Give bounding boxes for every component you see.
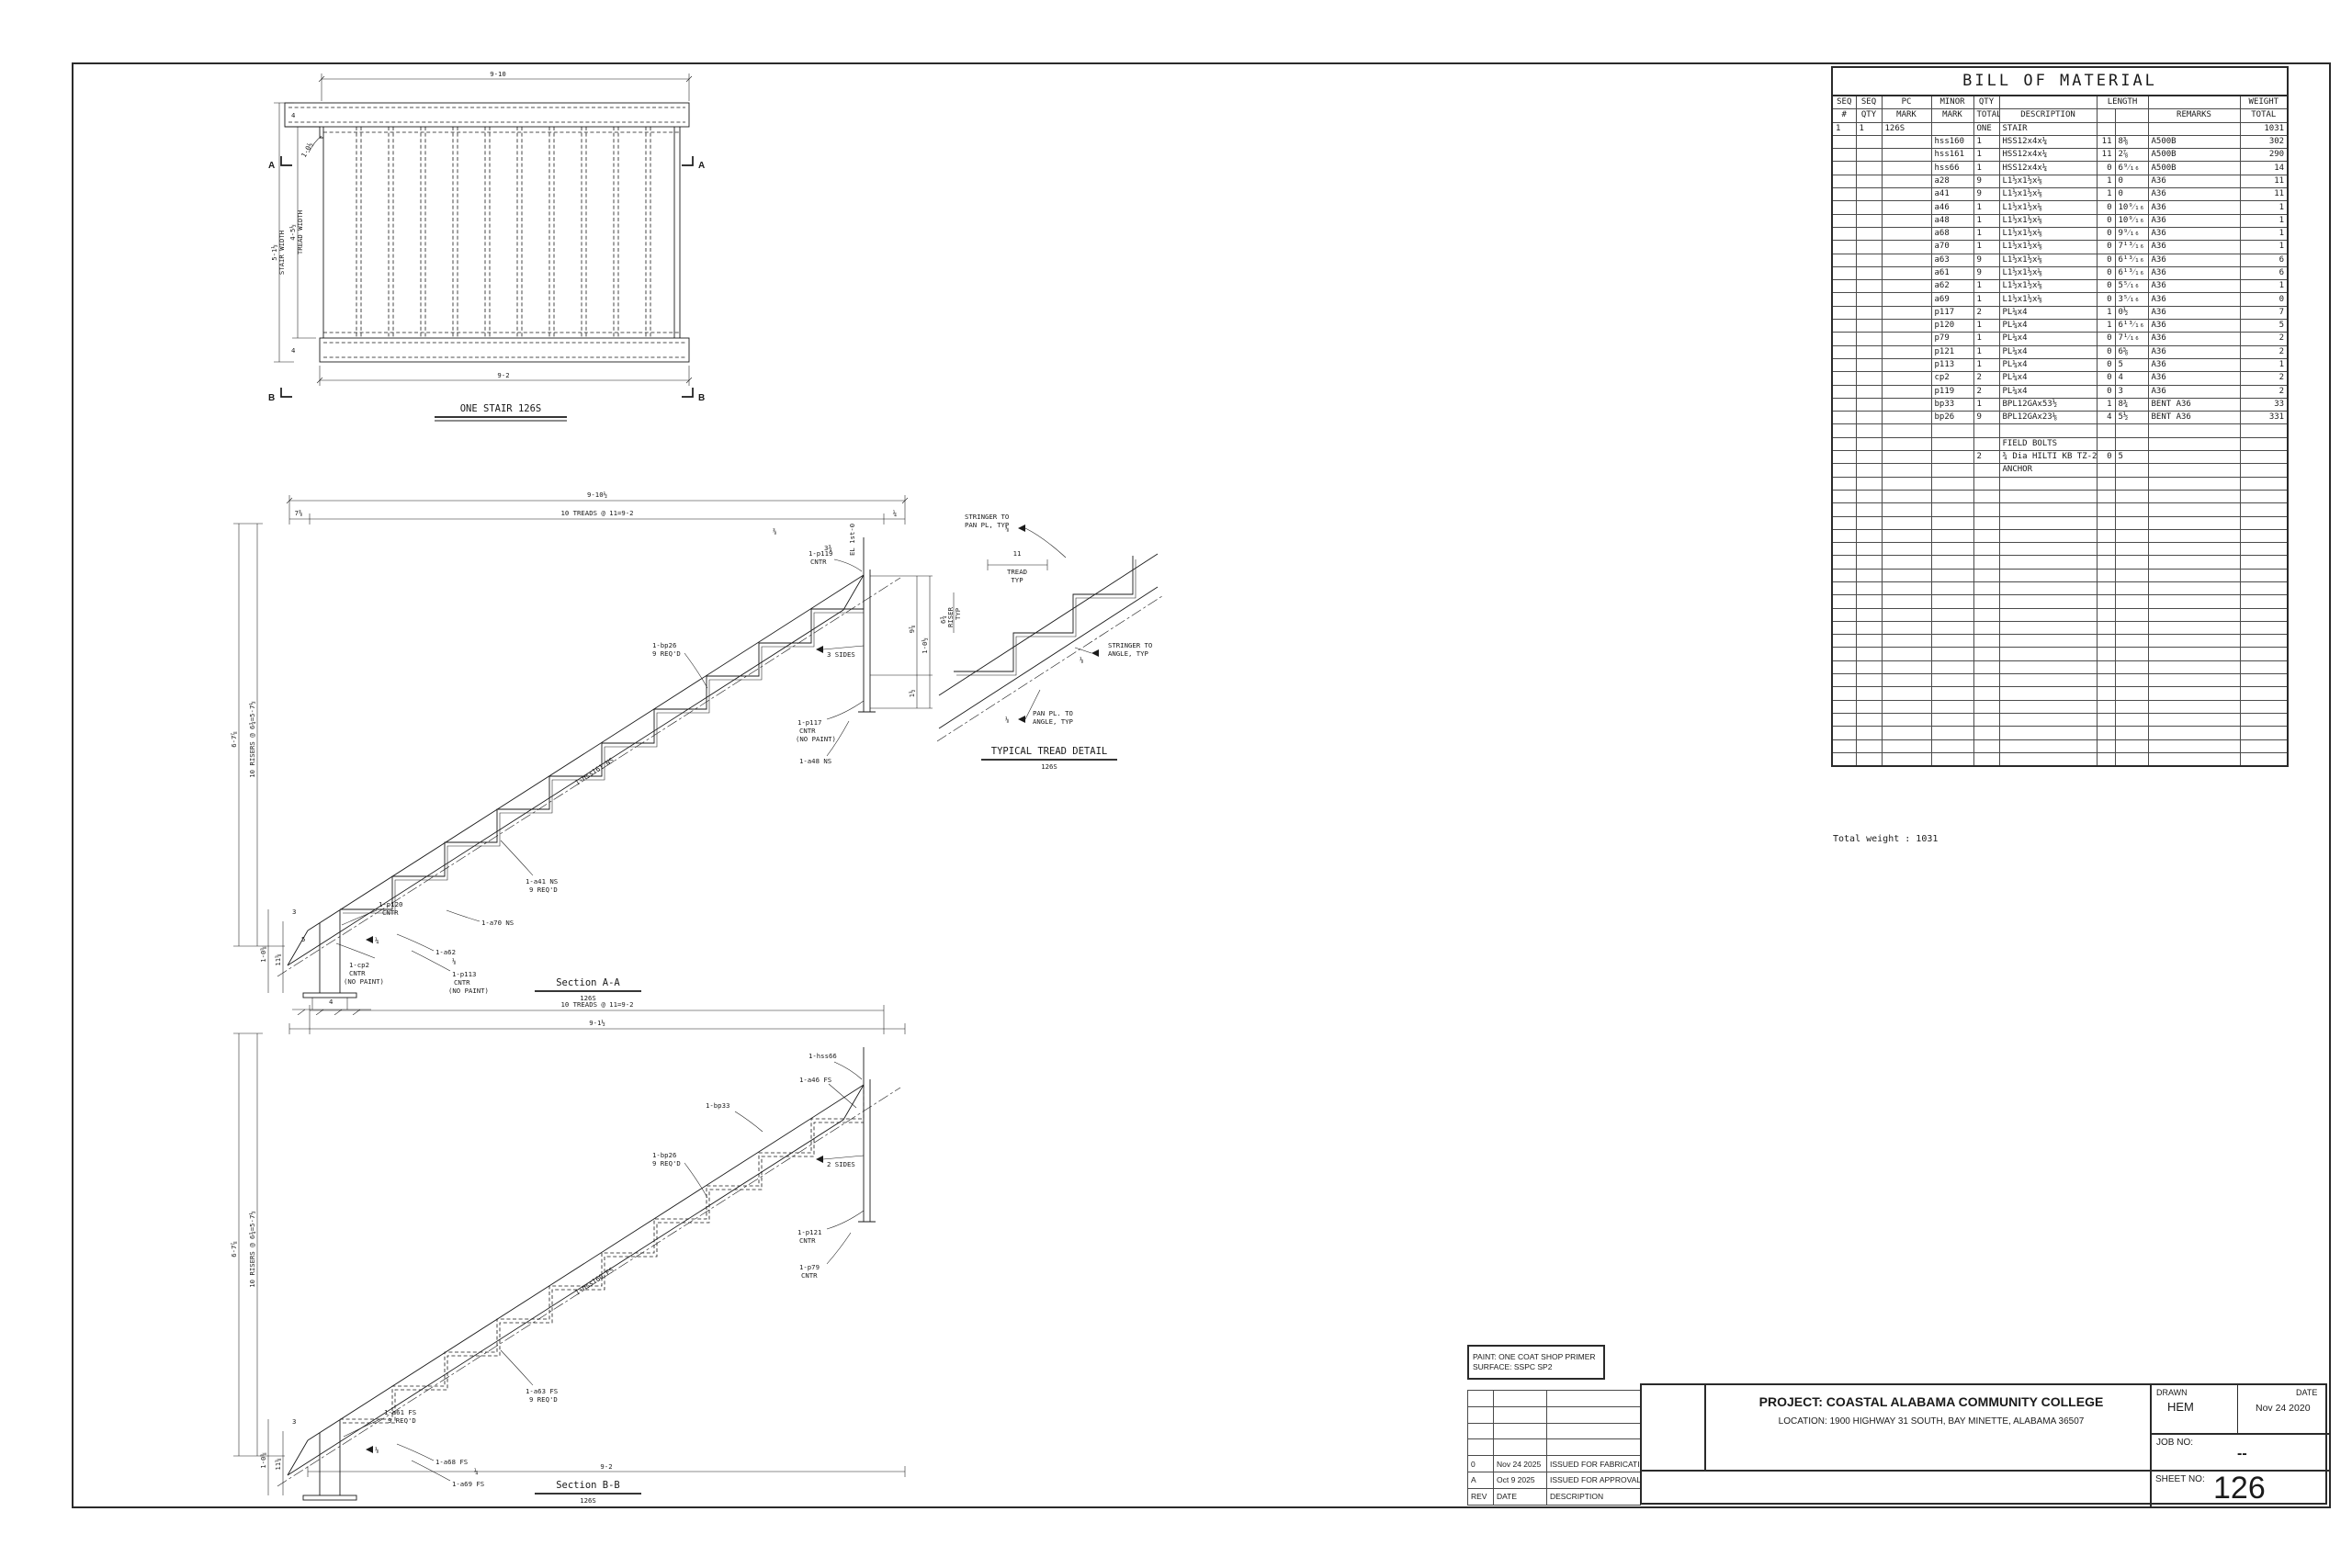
table-row bbox=[1832, 503, 2288, 516]
svg-text:CNTR: CNTR bbox=[810, 558, 827, 566]
seca-dim-risers: 10 RISERS @ 6¾=5-7½ bbox=[248, 701, 256, 777]
secb-callout-hss160: 1-hss160 FS bbox=[573, 1266, 615, 1297]
table-row: a621L1½x1½x⅛05⁵⁄₁₆A361 bbox=[1832, 280, 2288, 293]
secb-callout-a46: 1-a46 FS bbox=[799, 1076, 831, 1084]
table-row: 11126SONESTAIR1031 bbox=[1832, 122, 2288, 135]
table-row bbox=[1832, 516, 2288, 529]
plan-dim-4-bottom: 4 bbox=[291, 346, 296, 355]
svg-text:A: A bbox=[698, 161, 705, 171]
bill-of-material: BILL OF MATERIAL SEQSEQPC MINORQTY LENGT… bbox=[1831, 66, 2287, 767]
seca-callout-3sides: 3 SIDES bbox=[827, 650, 855, 659]
secb-callout-p121: 1-p121 bbox=[797, 1228, 821, 1236]
table-row: p1211PL¼x406⅝A362 bbox=[1832, 345, 2288, 358]
table-row bbox=[1468, 1391, 1641, 1407]
secb-weld-14: ¼ bbox=[474, 1467, 478, 1475]
svg-text:(NO PAINT): (NO PAINT) bbox=[796, 735, 836, 743]
table-row bbox=[1832, 608, 2288, 621]
tread-callout-stringer-pan-1: STRINGER TO bbox=[965, 513, 1009, 521]
seca-dim-treads: 10 TREADS @ 11=9-2 bbox=[560, 509, 633, 517]
plan-title: ONE STAIR 126S bbox=[460, 403, 542, 414]
secb-callout-a63: 1-a63 FS bbox=[526, 1387, 558, 1395]
table-row bbox=[1832, 529, 2288, 542]
table-row: a481L1½x1½x⅛010⁹⁄₁₆A361 bbox=[1832, 214, 2288, 227]
section-marker-a-right: A bbox=[682, 156, 705, 171]
tread-callout-stringer-angle-1: STRINGER TO bbox=[1108, 641, 1152, 649]
table-row: FIELD BOLTS bbox=[1832, 437, 2288, 450]
seca-callout-cp2: 1-cp2 bbox=[349, 961, 369, 969]
title-block: PROJECT: COASTAL ALABAMA COMMUNITY COLLE… bbox=[1640, 1383, 2327, 1505]
svg-text:CNTR: CNTR bbox=[454, 978, 470, 987]
plan-dim-bottom: 9-2 bbox=[497, 371, 509, 379]
table-row: REVDATEDESCRIPTION bbox=[1468, 1488, 1641, 1505]
secb-callout-p79: 1-p79 bbox=[799, 1263, 820, 1271]
table-row bbox=[1832, 727, 2288, 739]
paint-note-box: PAINT: ONE COAT SHOP PRIMER SURFACE: SSP… bbox=[1467, 1345, 1605, 1380]
secb-dim-912: 9-1½ bbox=[589, 1019, 605, 1027]
table-row bbox=[1832, 687, 2288, 700]
table-row bbox=[1832, 595, 2288, 608]
section-marker-b-left: B bbox=[268, 388, 292, 403]
seca-callout-a62: 1-a62 bbox=[435, 948, 456, 956]
total-weight: Total weight : 1031 bbox=[1833, 834, 1938, 844]
seca-dim-5: 5 bbox=[301, 935, 305, 943]
table-row: p1201PL¼x416¹³⁄₁₆A365 bbox=[1832, 320, 2288, 333]
tread-weld-18c: ⅛ bbox=[1005, 716, 1009, 724]
section-marker-b-right: B bbox=[682, 388, 705, 403]
secb-callout-hss66: 1-hss66 bbox=[808, 1052, 837, 1060]
secb-callout-a68: 1-a68 FS bbox=[435, 1458, 468, 1466]
table-row: a701L1½x1½x⅛07¹³⁄₁₆A361 bbox=[1832, 241, 2288, 254]
table-row: hss1601HSS12x4x¼118⅜A500B302 bbox=[1832, 135, 2288, 148]
plan-dim-top: 9-10 bbox=[490, 70, 506, 78]
seca-dim-1012: 1-0½ bbox=[921, 637, 929, 654]
table-row bbox=[1832, 477, 2288, 490]
table-row bbox=[1832, 556, 2288, 569]
secb-ref: 126S bbox=[580, 1496, 596, 1505]
seca-callout-p117: 1-p117 bbox=[797, 718, 821, 727]
svg-text:9 REQ'D: 9 REQ'D bbox=[652, 649, 681, 658]
table-row bbox=[1832, 581, 2288, 594]
svg-text:(NO PAINT): (NO PAINT) bbox=[344, 977, 384, 986]
secb-title: Section B-B bbox=[556, 1480, 620, 1491]
drawing-sheet: 9-10 5-1½ ST bbox=[0, 0, 2352, 1568]
seca-callout-p113: 1-p113 bbox=[452, 970, 476, 978]
svg-text:TREAD: TREAD bbox=[1007, 568, 1027, 576]
date-value: Nov 24 2020 bbox=[2256, 1403, 2311, 1414]
table-row: 0Nov 24 2025ISSUED FOR FABRICATION bbox=[1468, 1456, 1641, 1472]
seca-weld-14: ¼ bbox=[375, 936, 379, 944]
paint-line-2: SURFACE: SSPC SP2 bbox=[1473, 1362, 1600, 1372]
bom-header-row-1: SEQSEQPC MINORQTY LENGTHWEIGHT bbox=[1832, 96, 2288, 109]
svg-text:CNTR: CNTR bbox=[801, 1271, 818, 1280]
seca-callout-p120: 1-p120 bbox=[379, 900, 402, 908]
table-row: a619L1½x1½x⅛06¹³⁄₁₆A366 bbox=[1832, 266, 2288, 279]
table-row bbox=[1468, 1423, 1641, 1439]
svg-text:A: A bbox=[268, 161, 275, 171]
secb-dim-1058: 1-0⅝ bbox=[259, 1452, 267, 1469]
svg-text:PAN PL, TYP: PAN PL, TYP bbox=[965, 521, 1010, 529]
paint-line-1: PAINT: ONE COAT SHOP PRIMER bbox=[1473, 1352, 1600, 1362]
svg-text:B: B bbox=[268, 393, 275, 403]
table-row: a639L1½x1½x⅛06¹³⁄₁₆A366 bbox=[1832, 254, 2288, 266]
sheet-number: 126 bbox=[2213, 1471, 2266, 1506]
seca-callout-hss161: 1-hss161 NS bbox=[573, 756, 615, 787]
table-row bbox=[1832, 635, 2288, 648]
seca-dim-height: 6-7⅞ bbox=[230, 731, 238, 748]
table-row bbox=[1832, 713, 2288, 726]
table-row: p1172PL¼x410½A367 bbox=[1832, 306, 2288, 319]
section-marker-a-left: A bbox=[268, 156, 292, 171]
table-row: ANCHOR bbox=[1832, 464, 2288, 477]
secb-dim-treads: 10 TREADS @ 11=9-2 bbox=[560, 1000, 633, 1009]
svg-text:B: B bbox=[698, 393, 705, 403]
seca-callout-a70: 1-a70 NS bbox=[481, 919, 514, 927]
table-row: hss661HSS12x4x¼06⁹⁄₁₆A500B14 bbox=[1832, 162, 2288, 175]
table-row bbox=[1832, 752, 2288, 766]
secb-callout-bp26: 1-bp26 bbox=[652, 1151, 676, 1159]
plan-view: 9-10 5-1½ ST bbox=[266, 64, 707, 432]
table-row: a691L1½x1½x⅛03⁵⁄₁₆A360 bbox=[1832, 293, 2288, 306]
table-row: a681L1½x1½x⅛09⁹⁄₁₆A361 bbox=[1832, 227, 2288, 240]
secb-callout-a61: 1-a61 FS bbox=[384, 1408, 416, 1416]
tread-dim-11: 11 bbox=[1013, 549, 1022, 558]
plan-treads bbox=[356, 127, 650, 338]
seca-callout-a48: 1-a48 NS bbox=[799, 757, 831, 765]
tread-callout-pan-angle-1: PAN PL. TO bbox=[1033, 709, 1073, 717]
table-row bbox=[1832, 674, 2288, 687]
plan-dim-tread-width: TREAD WIDTH bbox=[296, 210, 304, 254]
secb-dim-1158: 11⅝ bbox=[274, 1458, 282, 1470]
section-a-view: 9-10½ 7⅜ 10 TREADS @ 11=9-2 ¼ 6-7⅞ 10 RI… bbox=[220, 482, 937, 1015]
table-row bbox=[1832, 569, 2288, 581]
plan-leader: 1-0½ bbox=[300, 141, 315, 159]
table-row bbox=[1832, 490, 2288, 502]
table-row bbox=[1832, 621, 2288, 634]
bom-body: 11126SONESTAIR1031hss1601HSS12x4x¼118⅜A5… bbox=[1832, 122, 2288, 766]
revision-table: 0Nov 24 2025ISSUED FOR FABRICATIONAOct 9… bbox=[1467, 1390, 1641, 1506]
secb-weld-18: ⅛ bbox=[375, 1446, 379, 1454]
seca-dim-1158: 11⅝ bbox=[274, 953, 282, 965]
svg-text:TYP: TYP bbox=[1011, 576, 1023, 584]
table-row bbox=[1832, 739, 2288, 752]
tread-ref: 126S bbox=[1041, 762, 1057, 771]
seca-dim-1058: 1-0⅝ bbox=[259, 946, 267, 963]
plan-dim-4-top: 4 bbox=[291, 111, 296, 119]
seca-dim-112: 1½ bbox=[908, 690, 916, 698]
drawn-value: HEM bbox=[2167, 1400, 2194, 1414]
revision-rows: 0Nov 24 2025ISSUED FOR FABRICATIONAOct 9… bbox=[1468, 1391, 1641, 1506]
svg-text:9 REQ'D: 9 REQ'D bbox=[529, 1395, 558, 1404]
tread-detail-view: STRINGER TO PAN PL, TYP ⅛ 11 TREAD TYP 6… bbox=[937, 501, 1167, 776]
table-row bbox=[1832, 648, 2288, 660]
table-row: a289L1½x1½x⅛10A3611 bbox=[1832, 175, 2288, 187]
seca-callout-bp26: 1-bp26 bbox=[652, 641, 676, 649]
svg-text:TYP: TYP bbox=[954, 607, 962, 620]
table-row bbox=[1832, 660, 2288, 673]
plan-dim-stair-width: STAIR WIDTH bbox=[277, 231, 286, 275]
seca-callout-p119: 1-p119 bbox=[808, 549, 832, 558]
table-row bbox=[1468, 1439, 1641, 1456]
table-row: 2¾ Dia HILTI KB TZ-205 bbox=[1832, 451, 2288, 464]
seca-dim-3: 3 bbox=[292, 908, 296, 916]
svg-text:CNTR: CNTR bbox=[799, 727, 816, 735]
secb-callout-a69: 1-a69 FS bbox=[452, 1480, 484, 1488]
seca-callout-a41: 1-a41 NS bbox=[526, 877, 558, 886]
drawn-label: DRAWN bbox=[2156, 1388, 2188, 1397]
svg-text:9 REQ'D: 9 REQ'D bbox=[529, 886, 558, 894]
secb-callout-bp33: 1-bp33 bbox=[706, 1101, 729, 1110]
secb-dim-height: 6-7⅞ bbox=[230, 1241, 238, 1258]
seca-title: Section A-A bbox=[556, 977, 620, 988]
table-row: a461L1½x1½x⅛010⁹⁄₁₆A361 bbox=[1832, 201, 2288, 214]
bom-header-row-2: #QTYMARK MARKTOTALDESCRIPTION REMARKSTOT… bbox=[1832, 109, 2288, 122]
seca-dim-left: 7⅜ bbox=[295, 509, 303, 517]
table-row bbox=[1468, 1406, 1641, 1423]
svg-text:CNTR: CNTR bbox=[799, 1236, 816, 1245]
table-row bbox=[1832, 700, 2288, 713]
seca-dim-38: ⅜ bbox=[773, 527, 776, 536]
svg-text:CNTR: CNTR bbox=[349, 969, 366, 977]
svg-text:9 REQ'D: 9 REQ'D bbox=[388, 1416, 416, 1425]
seca-el: EL 1st-0 bbox=[848, 524, 856, 556]
seca-dim-overall: 9-10½ bbox=[587, 491, 607, 499]
table-row: bp331BPL12GAx53½18¾BENT A3633 bbox=[1832, 398, 2288, 411]
section-b-view: 10 TREADS @ 11=9-2 9-1½ 6-7⅞ 10 RISERS @… bbox=[220, 992, 937, 1506]
secb-dim-bottom: 9-2 bbox=[600, 1462, 612, 1471]
date-label: DATE bbox=[2296, 1388, 2317, 1397]
secb-dim-3: 3 bbox=[292, 1417, 296, 1426]
svg-text:ANGLE, TYP: ANGLE, TYP bbox=[1033, 717, 1074, 726]
seca-dim-978: 9⅞ bbox=[908, 626, 916, 634]
seca-weld-18: ⅛ bbox=[452, 957, 456, 965]
tread-weld-18a: ⅛ bbox=[1005, 525, 1009, 533]
svg-text:9 REQ'D: 9 REQ'D bbox=[652, 1159, 681, 1168]
table-row: p1192PL¼x403A362 bbox=[1832, 385, 2288, 398]
svg-text:CNTR: CNTR bbox=[382, 908, 399, 917]
svg-text:ANGLE, TYP: ANGLE, TYP bbox=[1108, 649, 1149, 658]
job-value: -- bbox=[2237, 1446, 2247, 1462]
tread-weld-18b: ⅛ bbox=[1080, 656, 1083, 664]
table-row: AOct 9 2025ISSUED FOR APPROVAL bbox=[1468, 1472, 1641, 1488]
seca-dim-right: ¼ bbox=[893, 509, 897, 517]
table-row bbox=[1832, 543, 2288, 556]
table-row bbox=[1832, 424, 2288, 437]
table-row: hss1611HSS12x4x¼112⅞A500B290 bbox=[1832, 149, 2288, 162]
tread-title: TYPICAL TREAD DETAIL bbox=[991, 746, 1107, 757]
job-label: JOB NO: bbox=[2156, 1438, 2193, 1448]
secb-dim-risers: 10 RISERS @ 6¾=5-7½ bbox=[248, 1211, 256, 1287]
project-name: PROJECT: COASTAL ALABAMA COMMUNITY COLLE… bbox=[1715, 1394, 2147, 1409]
table-row: a419L1½x1½x⅛10A3611 bbox=[1832, 188, 2288, 201]
table-row: bp269BPL12GAx23⅛45½BENT A36331 bbox=[1832, 412, 2288, 424]
table-row: cp22PL¼x404A362 bbox=[1832, 372, 2288, 385]
bom-title: BILL OF MATERIAL bbox=[1832, 67, 2288, 96]
project-location: LOCATION: 1900 HIGHWAY 31 SOUTH, BAY MIN… bbox=[1715, 1416, 2147, 1427]
table-row: p791PL¼x407¹⁄₁₆A362 bbox=[1832, 333, 2288, 345]
secb-callout-2sides: 2 SIDES bbox=[827, 1160, 855, 1168]
sheet-label: SHEET NO: bbox=[2155, 1474, 2205, 1484]
table-row: p1131PL¼x405A361 bbox=[1832, 358, 2288, 371]
